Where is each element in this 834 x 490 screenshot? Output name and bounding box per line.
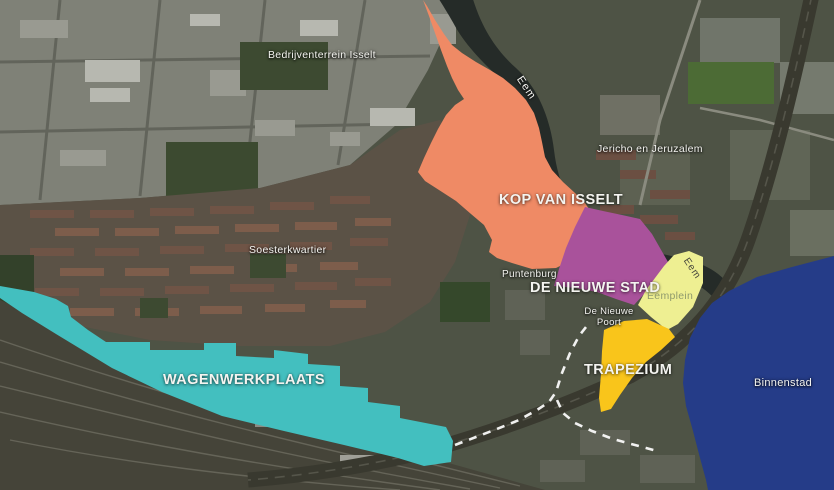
development-zones-map: Bedrijventerrein Isselt Eem Jericho en J… — [0, 0, 834, 490]
satellite-map-canvas — [0, 0, 834, 490]
